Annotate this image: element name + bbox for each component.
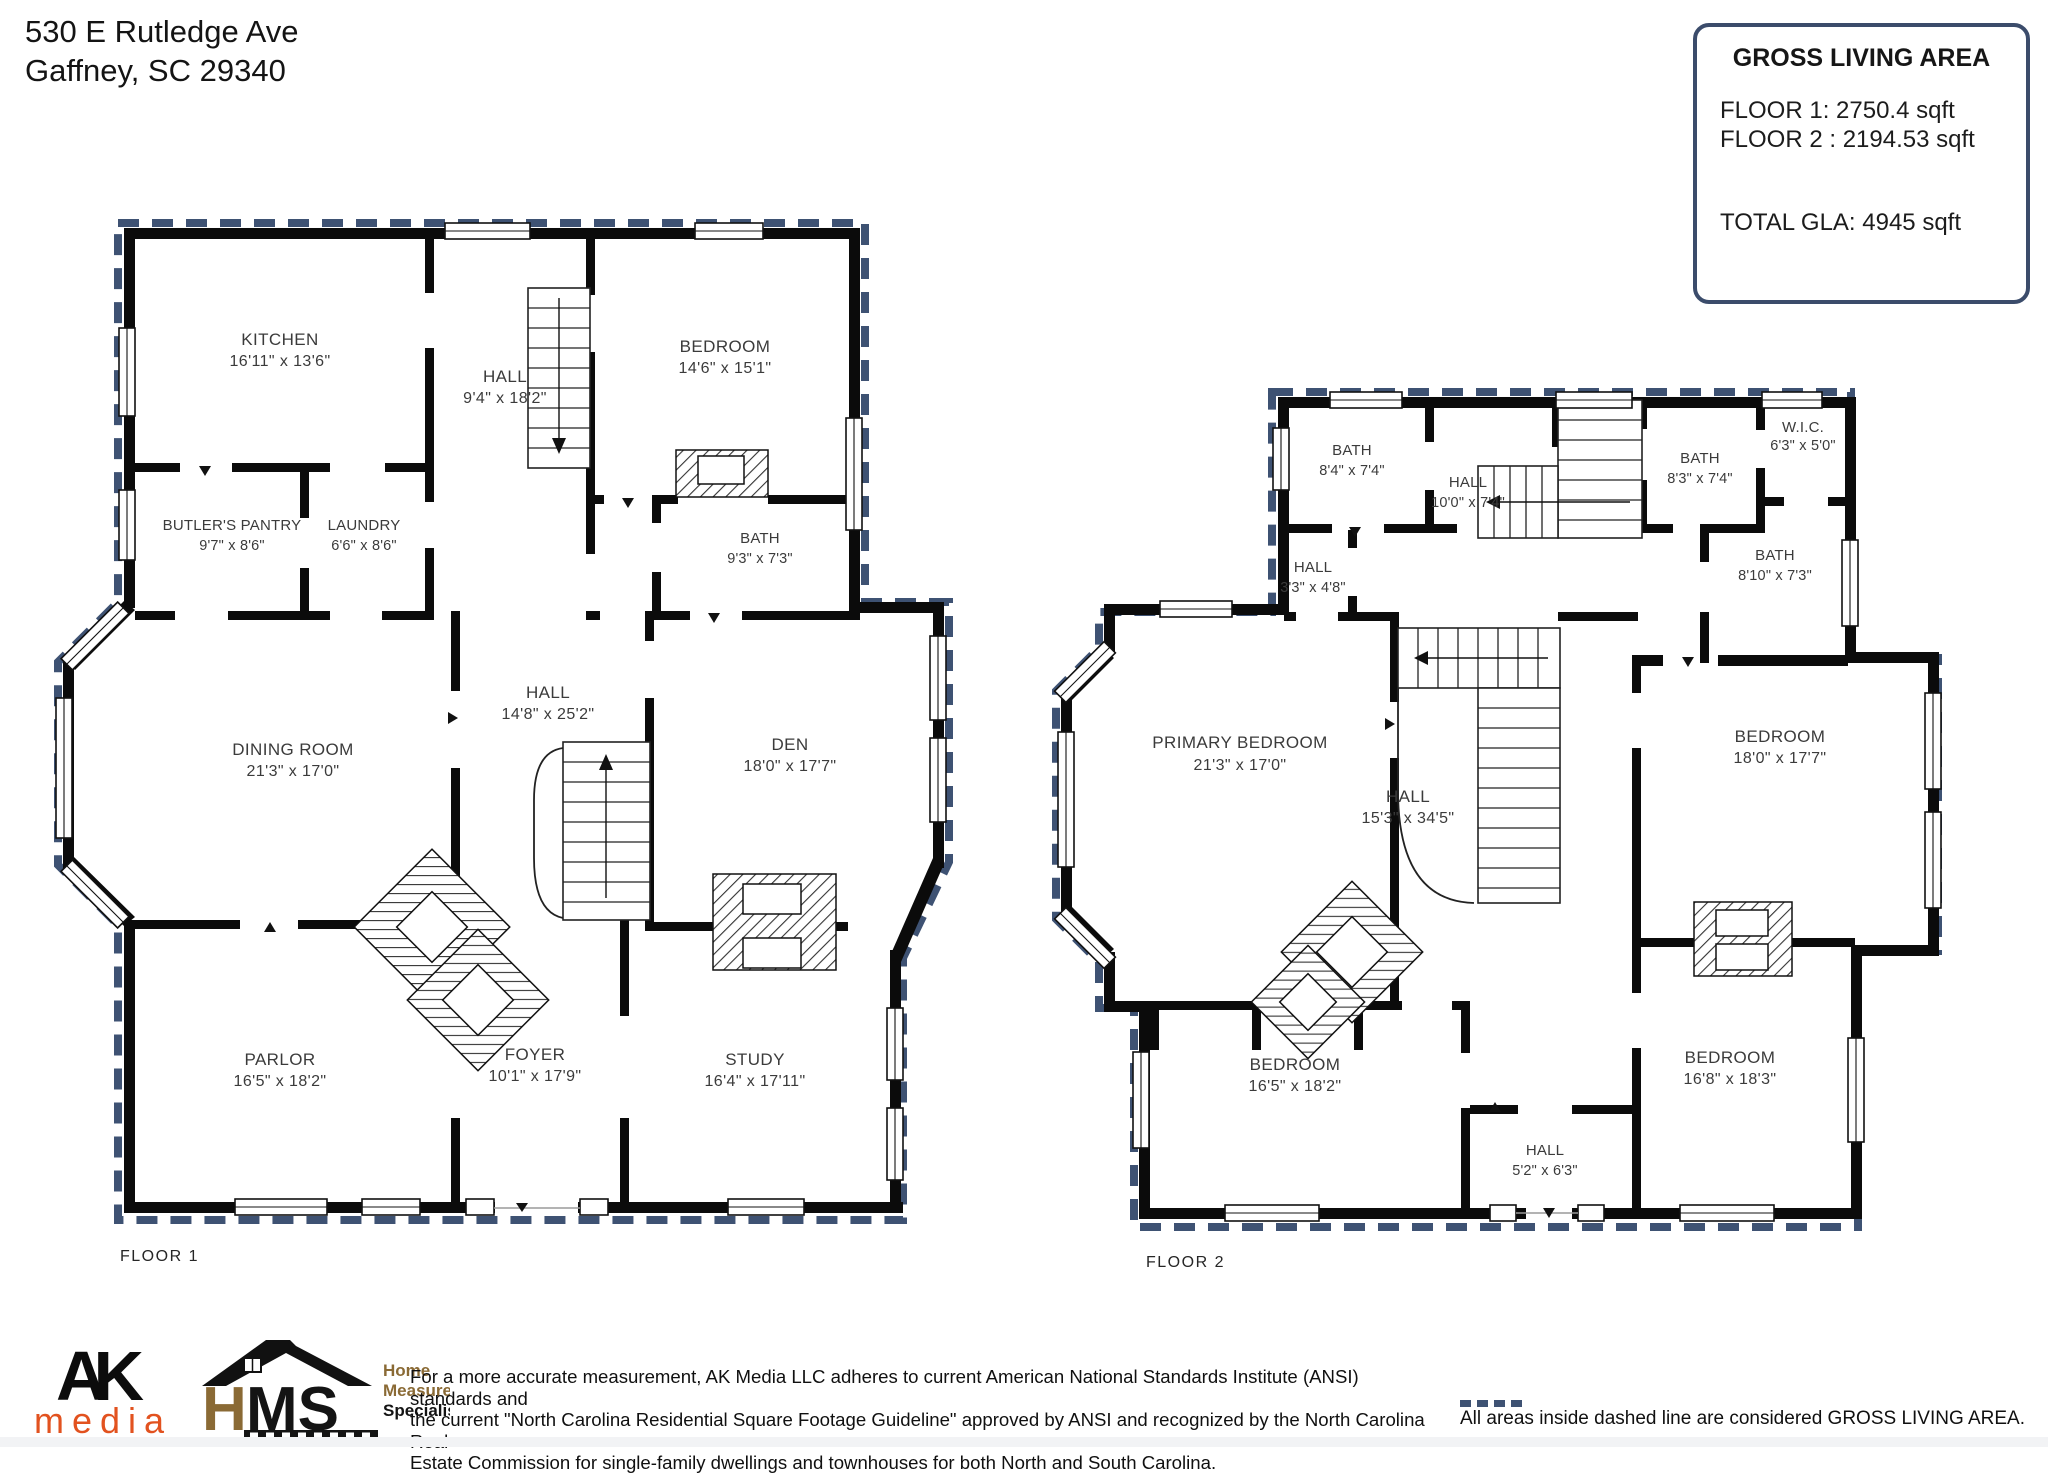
fireplace-icon: [713, 874, 836, 970]
floor2-plan: BATH8'4" x 7'4" HALL10'0" x 7'4" BATH8'3…: [1030, 370, 2040, 1260]
room-label-bedroom-168: BEDROOM16'8" x 18'3": [1684, 1048, 1777, 1088]
address-line2: Gaffney, SC 29340: [25, 51, 298, 90]
room-label-hall-52: HALL5'2" x 6'3": [1512, 1142, 1578, 1179]
ak-media-logo: AK media media: [28, 1336, 193, 1444]
room-label-bedroom-165: BEDROOM16'5" x 18'2": [1249, 1055, 1342, 1095]
measurement-disclaimer: For a more accurate measurement, AK Medi…: [410, 1366, 1430, 1474]
dashed-line-swatch: [1460, 1394, 2025, 1402]
room-label-bath-83: BATH8'3" x 7'4": [1667, 450, 1733, 487]
room-label-primary-bedroom: PRIMARY BEDROOM21'3" x 17'0": [1152, 733, 1327, 774]
gross-living-area-box: GROSS LIVING AREA FLOOR 1: 2750.4 sqft F…: [1693, 23, 2030, 304]
floor1-label: FLOOR 1: [120, 1248, 199, 1266]
room-label-hall-central: HALL15'3" x 34'5": [1362, 787, 1455, 827]
room-label-wic: W.I.C.6'3" x 5'0": [1770, 419, 1836, 454]
fireplace-icon: [676, 450, 768, 497]
disclaimer-line3: Estate Commission for single-family dwel…: [410, 1452, 1430, 1474]
address-line1: 530 E Rutledge Ave: [25, 12, 298, 51]
room-label-bath: BATH9'3" x 7'3": [727, 530, 793, 567]
page-bottom-strip: [0, 1437, 2048, 1447]
room-label-bath-84: BATH8'4" x 7'4": [1319, 442, 1385, 479]
room-label-den: DEN18'0" x 17'7": [744, 735, 837, 775]
property-address: 530 E Rutledge Ave Gaffney, SC 29340: [25, 12, 298, 90]
floor1-plan: KITCHEN16'11" x 13'6" HALL9'4" x 18'2" B…: [40, 200, 1000, 1260]
page: 530 E Rutledge Ave Gaffney, SC 29340 GRO…: [0, 0, 2048, 1447]
gla-legend: All areas inside dashed line are conside…: [1460, 1394, 2025, 1430]
gla-floor1-value: FLOOR 1: 2750.4 sqft: [1720, 97, 1955, 125]
room-label-bath-810: BATH8'10" x 7'3": [1738, 547, 1812, 584]
stairs-icon: [534, 742, 650, 920]
stairs-icon: [1398, 628, 1560, 903]
room-label-kitchen: KITCHEN16'11" x 13'6": [229, 330, 330, 370]
stairs-icon: [1478, 400, 1642, 538]
room-label-bedroom-18: BEDROOM18'0" x 17'7": [1734, 727, 1827, 767]
floor2-label: FLOOR 2: [1146, 1254, 1225, 1272]
fireplace-icon: [1694, 902, 1792, 976]
room-label-hall-33: HALL3'3" x 4'8": [1280, 559, 1346, 596]
room-label-parlor: PARLOR16'5" x 18'2": [234, 1050, 327, 1090]
room-label-laundry: LAUNDRY6'6" x 8'6": [328, 517, 401, 554]
gla-title: GROSS LIVING AREA: [1697, 44, 2026, 73]
gla-floor2-value: FLOOR 2 : 2194.53 sqft: [1720, 126, 1975, 154]
room-label-hall-central: HALL14'8" x 25'2": [502, 683, 595, 723]
room-label-study: STUDY16'4" x 17'11": [704, 1050, 805, 1090]
room-label-butlers-pantry: BUTLER'S PANTRY9'7" x 8'6": [163, 517, 302, 554]
disclaimer-line1: For a more accurate measurement, AK Medi…: [410, 1366, 1430, 1409]
room-label-bedroom: BEDROOM14'6" x 15'1": [679, 337, 772, 377]
room-label-dining-room: DINING ROOM21'3" x 17'0": [232, 740, 354, 780]
stairs-icon: [528, 288, 590, 468]
legend-text: All areas inside dashed line are conside…: [1460, 1408, 2025, 1430]
gla-total-value: TOTAL GLA: 4945 sqft: [1720, 209, 1961, 237]
room-label-foyer: FOYER10'1" x 17'9": [489, 1045, 582, 1085]
hms-h-letter: H: [202, 1375, 247, 1444]
